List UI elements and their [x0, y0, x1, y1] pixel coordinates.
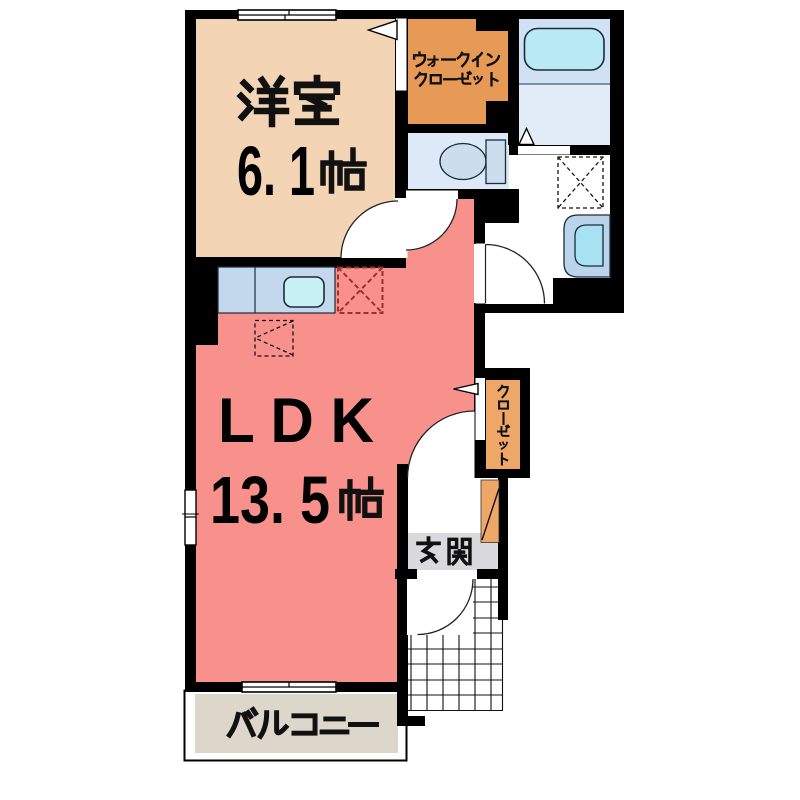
- svg-text:L D K: L D K: [218, 386, 374, 456]
- svg-text:6. 1: 6. 1: [237, 132, 315, 210]
- svg-text:13. 5: 13. 5: [210, 463, 330, 538]
